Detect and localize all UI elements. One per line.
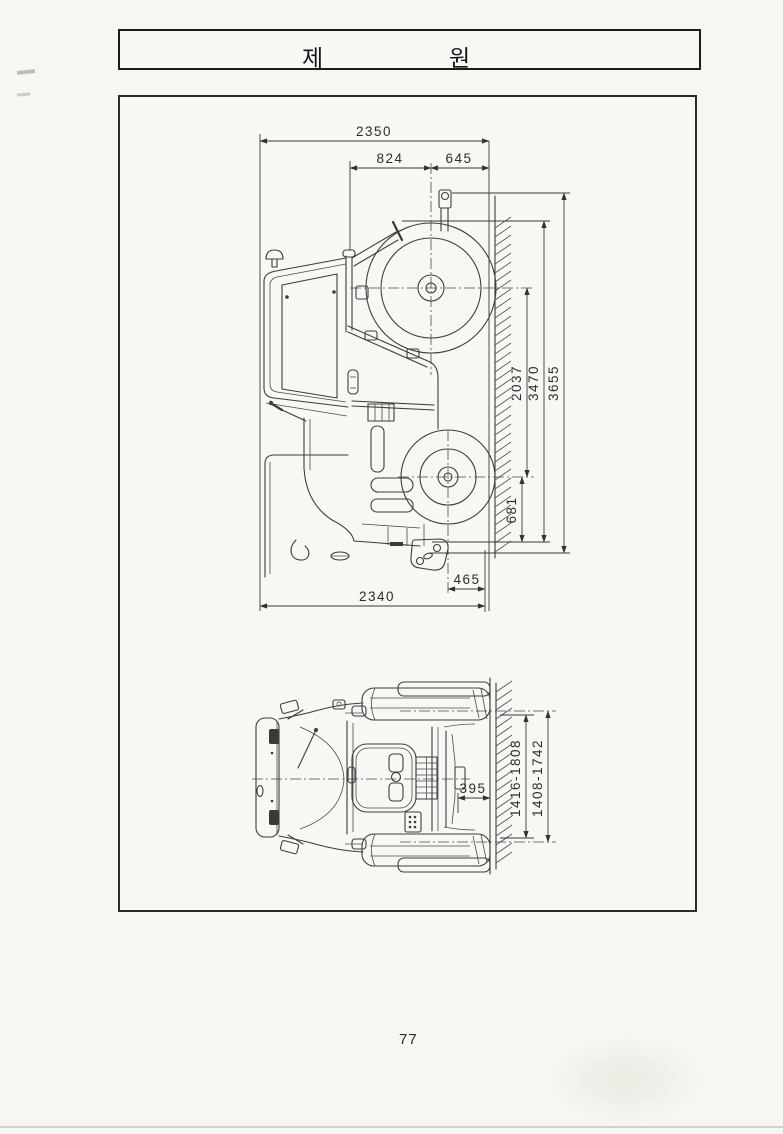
page-number: 77 <box>399 1031 418 1048</box>
dim-645-label: 645 <box>445 151 472 166</box>
dim-3470-label: 3470 <box>526 365 541 401</box>
dim-1408-1742-label: 1408-1742 <box>530 739 545 817</box>
technical-drawing: 2350 824 645 2037 681 3470 3655 465 2340 <box>0 0 783 1134</box>
rear-view-drawing: 395 1416-1808 1408-1742 <box>252 678 556 874</box>
dim-2037-label: 2037 <box>509 365 524 401</box>
dim-395-label: 395 <box>459 781 486 796</box>
dim-681-label: 681 <box>504 496 519 523</box>
dim-2340-label: 2340 <box>359 589 395 604</box>
dim-465-label: 465 <box>453 572 480 587</box>
dim-2350-label: 2350 <box>356 124 392 139</box>
scan-smudge <box>545 1035 705 1125</box>
scanned-spec-page: 제 원 <box>0 0 783 1134</box>
side-view-drawing: 2350 824 645 2037 681 3470 3655 465 2340 <box>260 124 570 612</box>
dim-1416-1808-label: 1416-1808 <box>508 739 523 817</box>
dim-824-label: 824 <box>376 151 403 166</box>
scan-bottom-edge <box>0 1126 783 1128</box>
dim-3655-label: 3655 <box>546 365 561 401</box>
